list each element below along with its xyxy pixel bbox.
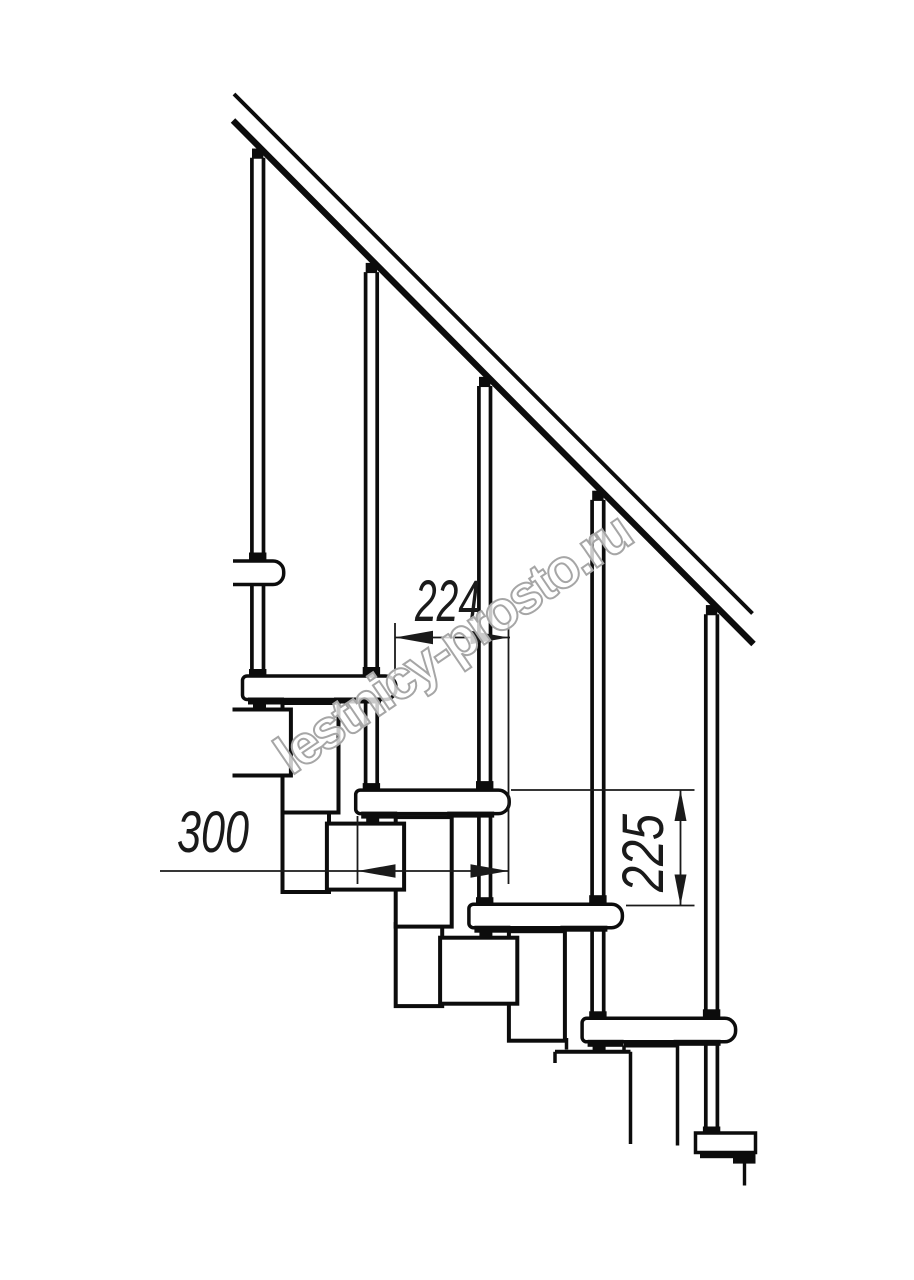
svg-text:300: 300 xyxy=(177,800,249,865)
svg-text:225: 225 xyxy=(611,813,676,892)
